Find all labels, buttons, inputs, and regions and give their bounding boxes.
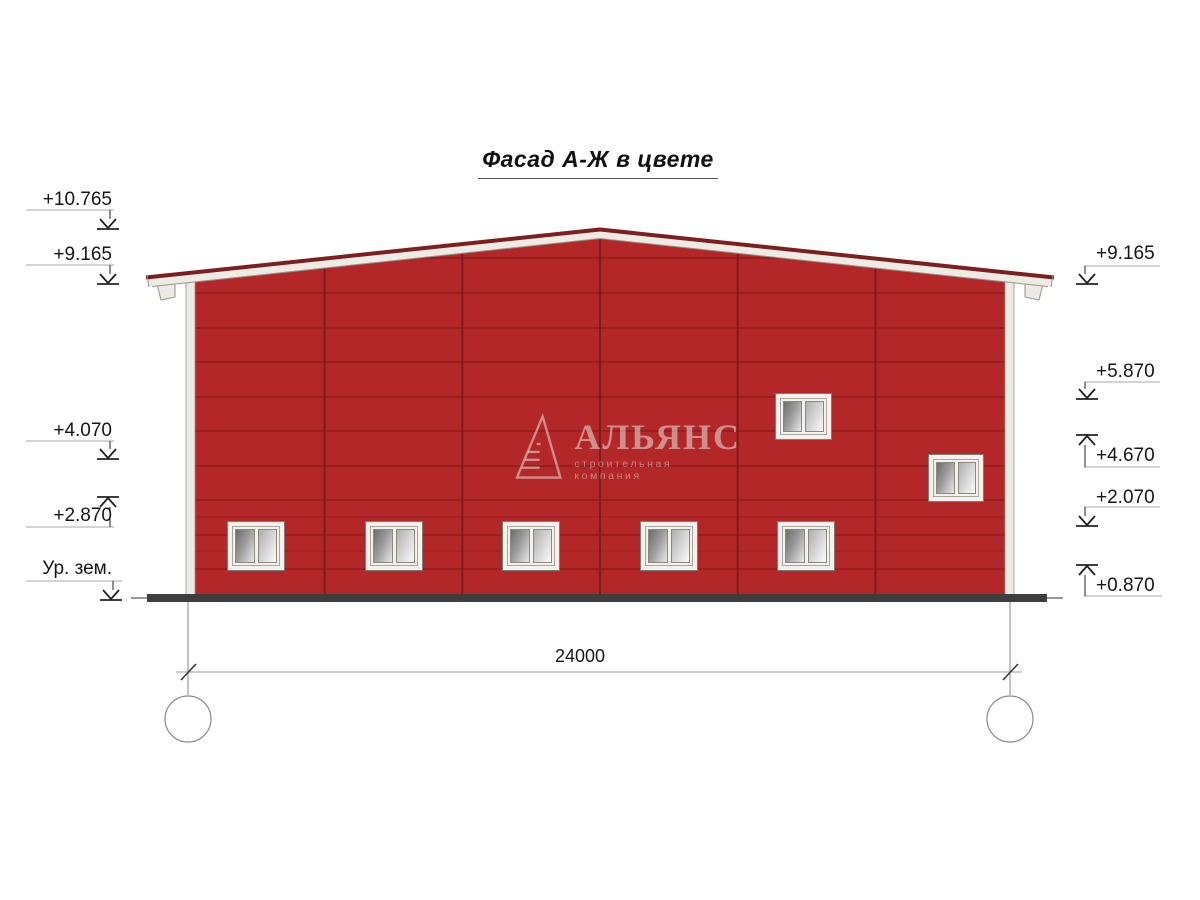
window	[775, 393, 832, 440]
wall	[180, 230, 1020, 596]
window	[227, 521, 285, 571]
drawing-linework	[0, 0, 1200, 900]
facade-drawing: АЛЬЯНС строительная компания Фасад А-Ж в…	[0, 0, 1200, 900]
window	[365, 521, 423, 571]
level-markers-left	[26, 210, 122, 600]
window	[640, 521, 698, 571]
window	[777, 521, 835, 571]
axis-circle-a	[165, 696, 211, 742]
window	[928, 454, 984, 502]
window	[502, 521, 560, 571]
axis-circle-zh	[987, 696, 1033, 742]
ground-line	[131, 594, 1063, 602]
dimension-line	[176, 602, 1022, 695]
axis-bubbles	[165, 696, 1033, 742]
right-corner-trim	[1005, 279, 1014, 596]
level-markers-right	[1076, 266, 1162, 596]
left-corner-trim	[186, 279, 195, 596]
